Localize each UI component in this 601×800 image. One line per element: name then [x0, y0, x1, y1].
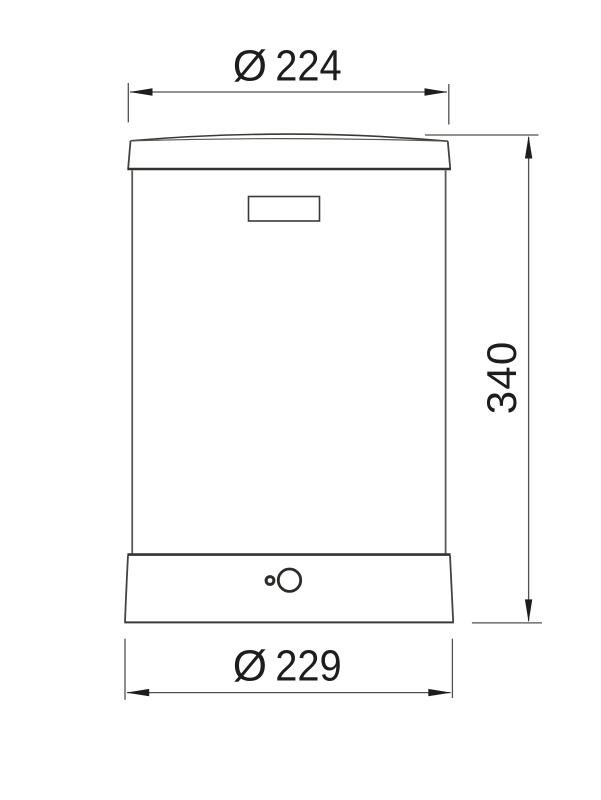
svg-text:340: 340: [478, 342, 525, 415]
svg-text:Ø: Ø: [233, 42, 267, 91]
svg-text:229: 229: [275, 642, 342, 691]
svg-text:224: 224: [275, 42, 342, 91]
svg-text:Ø: Ø: [233, 642, 267, 691]
